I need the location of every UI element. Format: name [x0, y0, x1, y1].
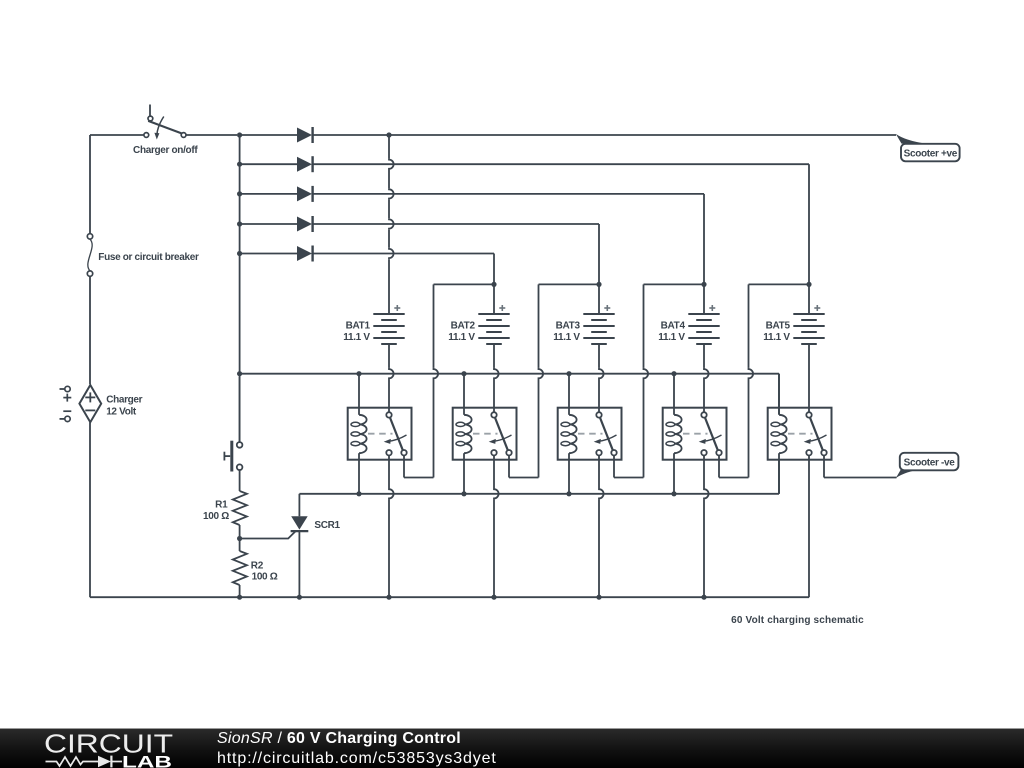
svg-text:BAT2: BAT2	[451, 320, 476, 331]
svg-text:11.1 V: 11.1 V	[553, 332, 580, 343]
svg-text:BAT5: BAT5	[766, 320, 791, 331]
svg-text:11.1 V: 11.1 V	[343, 332, 370, 343]
svg-text:60 Volt charging schematic: 60 Volt charging schematic	[731, 615, 864, 626]
svg-text:Fuse or circuit breaker: Fuse or circuit breaker	[98, 252, 199, 263]
svg-text:BAT3: BAT3	[556, 320, 581, 331]
svg-text:11.1 V: 11.1 V	[763, 332, 790, 343]
svg-text:11.1 V: 11.1 V	[448, 332, 475, 343]
svg-text:12 Volt: 12 Volt	[106, 407, 137, 418]
svg-text:SCR1: SCR1	[314, 520, 340, 531]
svg-text:Scooter -ve: Scooter -ve	[904, 458, 956, 469]
svg-text:Scooter +ve: Scooter +ve	[904, 149, 958, 160]
svg-text:11.1 V: 11.1 V	[658, 332, 685, 343]
svg-text:Charger on/off: Charger on/off	[133, 145, 198, 156]
svg-text:BAT1: BAT1	[346, 320, 371, 331]
svg-text:100 Ω: 100 Ω	[203, 511, 229, 522]
svg-text:R2: R2	[251, 560, 264, 571]
svg-text:LAB: LAB	[122, 753, 172, 768]
svg-text:BAT4: BAT4	[661, 320, 686, 331]
svg-text:100 Ω: 100 Ω	[252, 571, 278, 582]
svg-text:Charger: Charger	[106, 395, 142, 406]
svg-text:R1: R1	[215, 499, 228, 510]
